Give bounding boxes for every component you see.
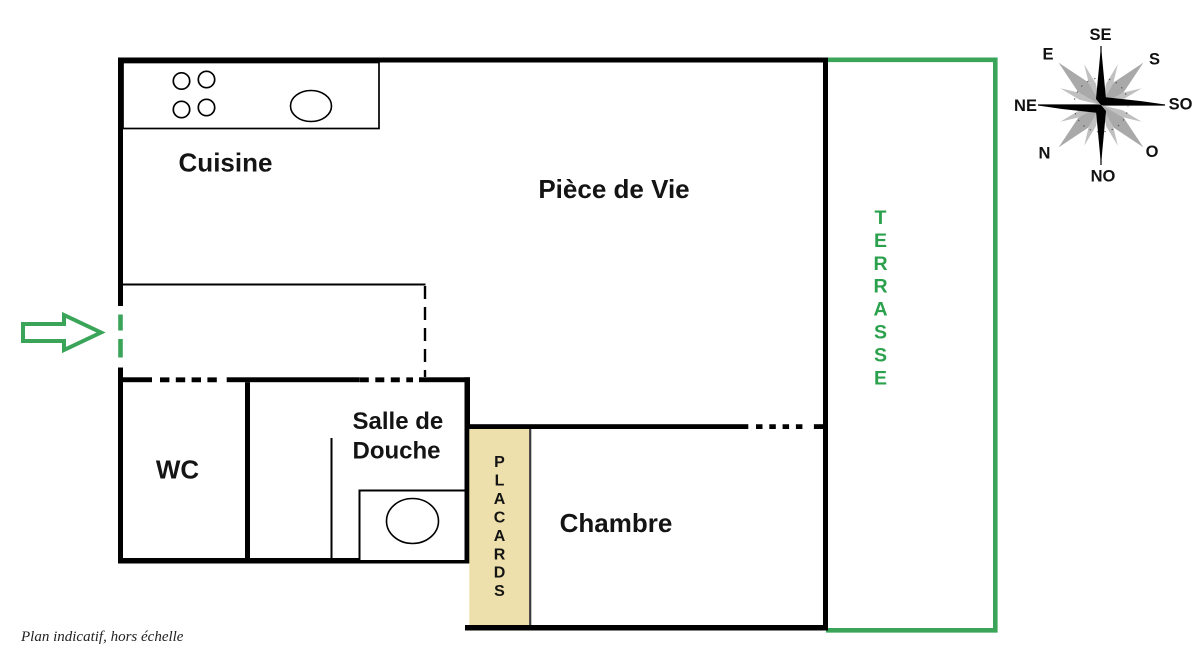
svg-text:N: N bbox=[1039, 145, 1051, 163]
svg-text:NO: NO bbox=[1091, 168, 1116, 186]
svg-text:Chambre: Chambre bbox=[560, 508, 673, 538]
svg-text:Pièce de Vie: Pièce de Vie bbox=[538, 174, 689, 204]
svg-text:SO: SO bbox=[1169, 96, 1193, 114]
svg-text:S: S bbox=[1149, 51, 1160, 69]
svg-text:O: O bbox=[1146, 143, 1159, 161]
svg-text:Plan indicatif, hors échelle: Plan indicatif, hors échelle bbox=[20, 629, 184, 645]
svg-text:Salle de: Salle de bbox=[353, 408, 444, 435]
svg-text:SE: SE bbox=[1089, 26, 1111, 44]
svg-text:TERRASSE: TERRASSE bbox=[873, 207, 887, 389]
svg-text:Douche: Douche bbox=[353, 438, 441, 465]
svg-text:PLACARDS: PLACARDS bbox=[494, 454, 506, 600]
svg-text:E: E bbox=[1042, 46, 1053, 64]
svg-text:WC: WC bbox=[156, 455, 200, 485]
svg-text:Cuisine: Cuisine bbox=[179, 148, 273, 178]
svg-text:NE: NE bbox=[1014, 97, 1037, 115]
